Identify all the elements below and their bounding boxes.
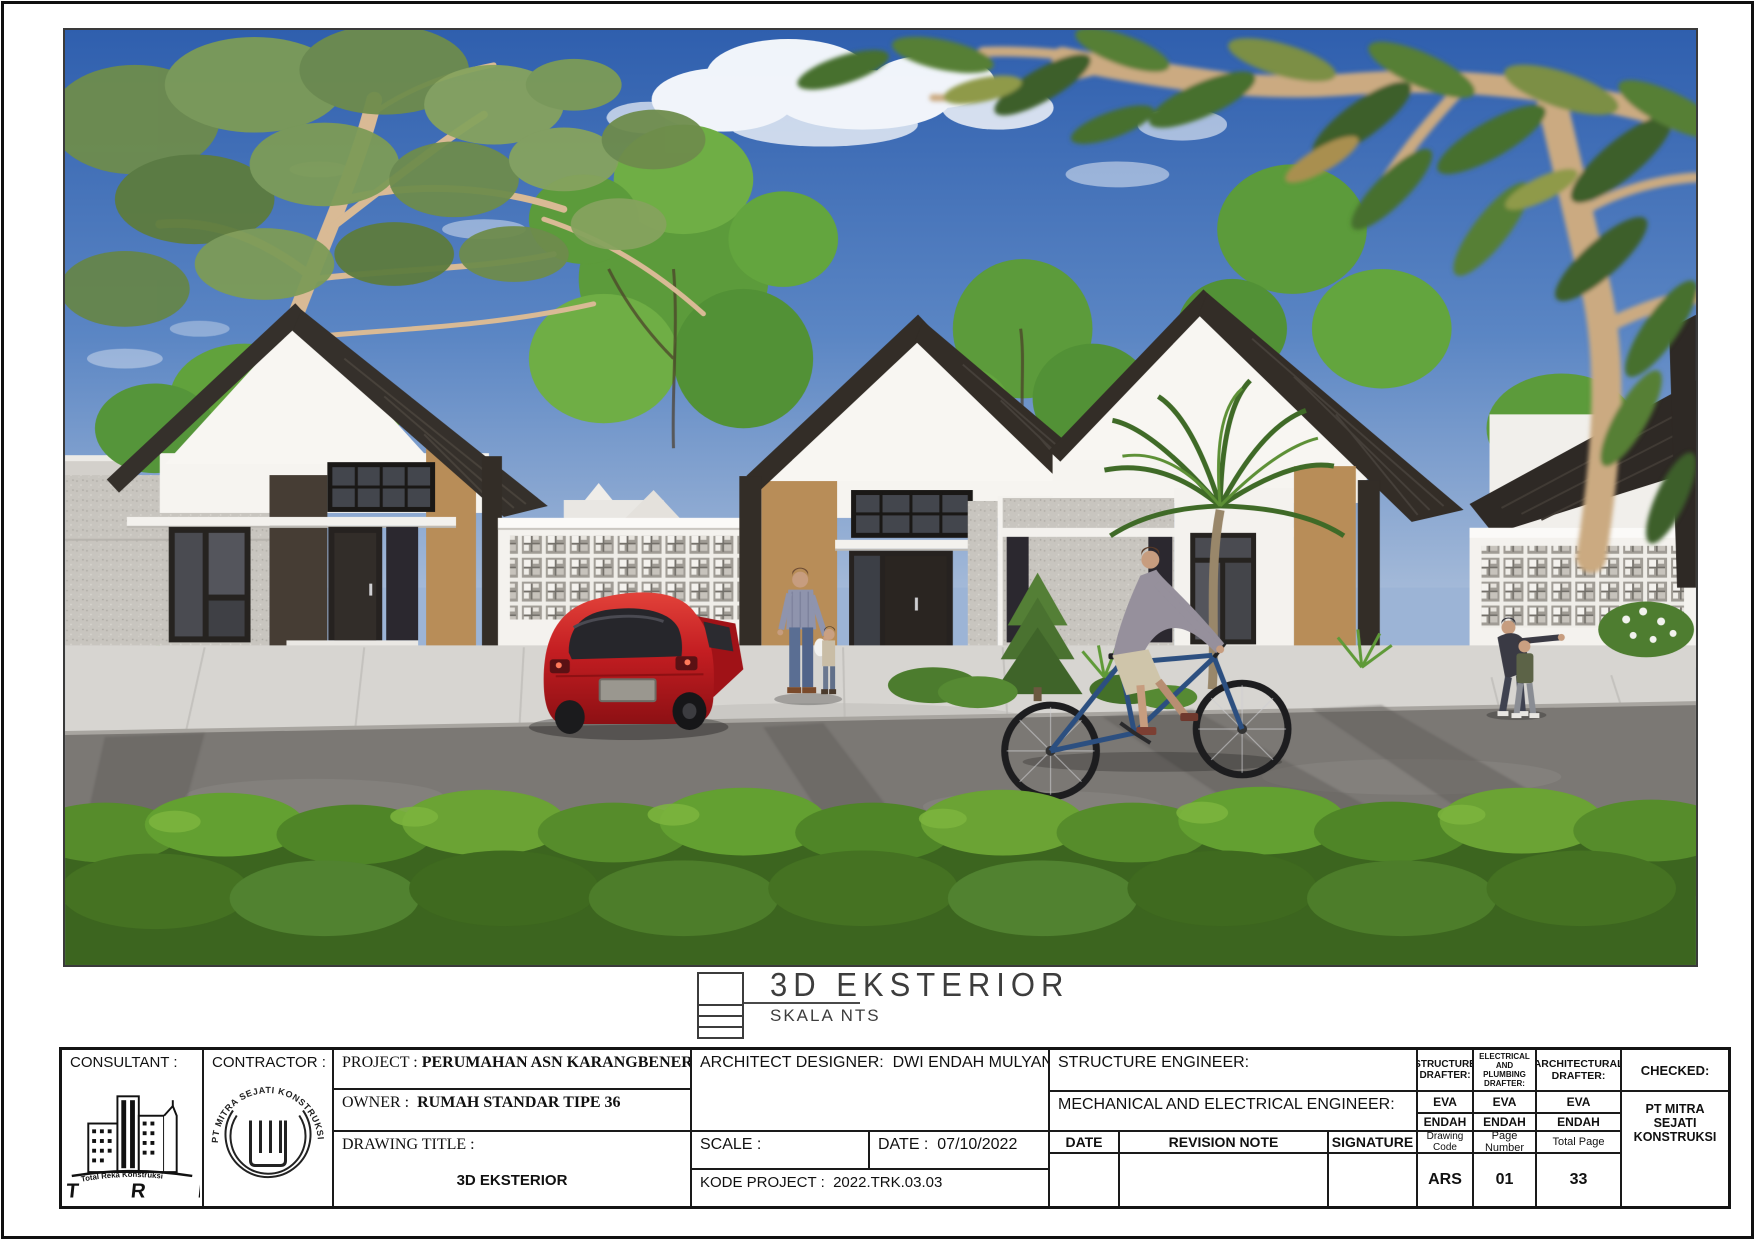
structure-drafter-title: STRUCTURE DRAFTER:: [1416, 1048, 1474, 1092]
drawing-sheet: 3D EKSTERIOR SKALA NTS CONSULTANT :: [0, 0, 1755, 1240]
trk-initials: T R K: [65, 1179, 200, 1202]
trk-logo: Total Reka Konstruksi T R K: [64, 1077, 200, 1205]
architect-cell: ARCHITECT DESIGNER: DWI ENDAH MULYANI: [690, 1048, 1050, 1132]
page-number-label: Page Number: [1472, 1130, 1537, 1154]
structure-drafter-name1: EVA: [1416, 1090, 1474, 1114]
structure-engineer-label: STRUCTURE ENGINEER:: [1050, 1050, 1416, 1076]
caption-scale: SKALA NTS: [770, 1006, 881, 1026]
kode-project-label: KODE PROJECT :: [700, 1174, 825, 1191]
project-value: PERUMAHAN ASN KARANGBENER: [422, 1054, 692, 1071]
architectural-drafter-name1: EVA: [1535, 1090, 1622, 1114]
contractor-cell: CONTRACTOR : PT MITRA SEJATI KONSTRUKSI: [202, 1048, 334, 1208]
owner-cell: OWNER : RUMAH STANDAR TIPE 36: [332, 1088, 692, 1132]
architect-label: ARCHITECT DESIGNER:: [700, 1054, 884, 1071]
scale-label: SCALE :: [692, 1132, 868, 1158]
drawing-title-cell: DRAWING TITLE : 3D EKSTERIOR: [332, 1130, 692, 1208]
revision-note-empty: [1118, 1152, 1329, 1208]
checked-value-cell: PT MITRA SEJATI KONSTRUKSI: [1620, 1090, 1730, 1208]
hedge: [65, 787, 1696, 965]
kode-project-value: 2022.TRK.03.03: [833, 1174, 942, 1191]
title-block: CONSULTANT :: [60, 1048, 1730, 1208]
page-number-value: 01: [1472, 1152, 1537, 1208]
drawing-code-label: Drawing Code: [1416, 1130, 1474, 1154]
revision-header-note: REVISION NOTE: [1118, 1130, 1329, 1154]
project-cell: PROJECT : PERUMAHAN ASN KARANGBENER: [332, 1048, 692, 1090]
date-label: DATE :: [878, 1136, 928, 1153]
architect-value: DWI ENDAH MULYANI: [893, 1054, 1050, 1071]
owner-value: RUMAH STANDAR TIPE 36: [417, 1094, 620, 1111]
project-label: PROJECT :: [342, 1054, 418, 1071]
checked-label: CHECKED:: [1620, 1048, 1730, 1092]
exterior-render: [63, 28, 1698, 967]
kode-project-cell: KODE PROJECT : 2022.TRK.03.03: [690, 1168, 1050, 1208]
svg-text:PT MITRA SEJATI KONSTRUKSI: PT MITRA SEJATI KONSTRUKSI: [210, 1085, 326, 1143]
electrical-drafter-name1: EVA: [1472, 1090, 1537, 1114]
revision-header-date: DATE: [1048, 1130, 1120, 1154]
revision-header-signature: SIGNATURE: [1327, 1130, 1418, 1154]
date-cell: DATE : 07/10/2022: [868, 1130, 1050, 1170]
contractor-stamp: PT MITRA SEJATI KONSTRUKSI: [208, 1075, 328, 1201]
architectural-drafter-title: ARCHITECTURAL DRAFTER:: [1535, 1048, 1622, 1092]
revision-date-empty: [1048, 1152, 1120, 1208]
scale-cell: SCALE :: [690, 1130, 870, 1170]
consultant-cell: CONSULTANT :: [60, 1048, 204, 1208]
total-page-label: Total Page: [1535, 1130, 1622, 1154]
caption-title: 3D EKSTERIOR: [770, 966, 1069, 1005]
drawing-title-value: 3D EKSTERIOR: [334, 1172, 690, 1189]
revision-signature-empty: [1327, 1152, 1418, 1208]
checked-value: PT MITRA SEJATI KONSTRUKSI: [1622, 1092, 1728, 1154]
drawing-code-value: ARS: [1416, 1152, 1474, 1208]
consultant-label: CONSULTANT :: [62, 1050, 202, 1075]
me-engineer-cell: MECHANICAL AND ELECTRICAL ENGINEER:: [1048, 1090, 1418, 1132]
electrical-drafter-title: ELECTRICAL AND PLUMBING DRAFTER:: [1472, 1048, 1537, 1092]
architectural-drafter-name2: ENDAH: [1535, 1112, 1622, 1132]
drawing-title-label: DRAWING TITLE :: [334, 1132, 690, 1158]
electrical-drafter-name2: ENDAH: [1472, 1112, 1537, 1132]
structure-engineer-cell: STRUCTURE ENGINEER:: [1048, 1048, 1418, 1092]
me-engineer-label: MECHANICAL AND ELECTRICAL ENGINEER:: [1050, 1092, 1416, 1118]
drawing-symbol-icon: [697, 972, 744, 1039]
structure-drafter-name2: ENDAH: [1416, 1112, 1474, 1132]
owner-label: OWNER :: [342, 1094, 409, 1111]
total-page-value: 33: [1535, 1152, 1622, 1208]
render-scene: [65, 30, 1696, 965]
contractor-label: CONTRACTOR :: [204, 1050, 332, 1075]
date-value: 07/10/2022: [937, 1136, 1017, 1153]
